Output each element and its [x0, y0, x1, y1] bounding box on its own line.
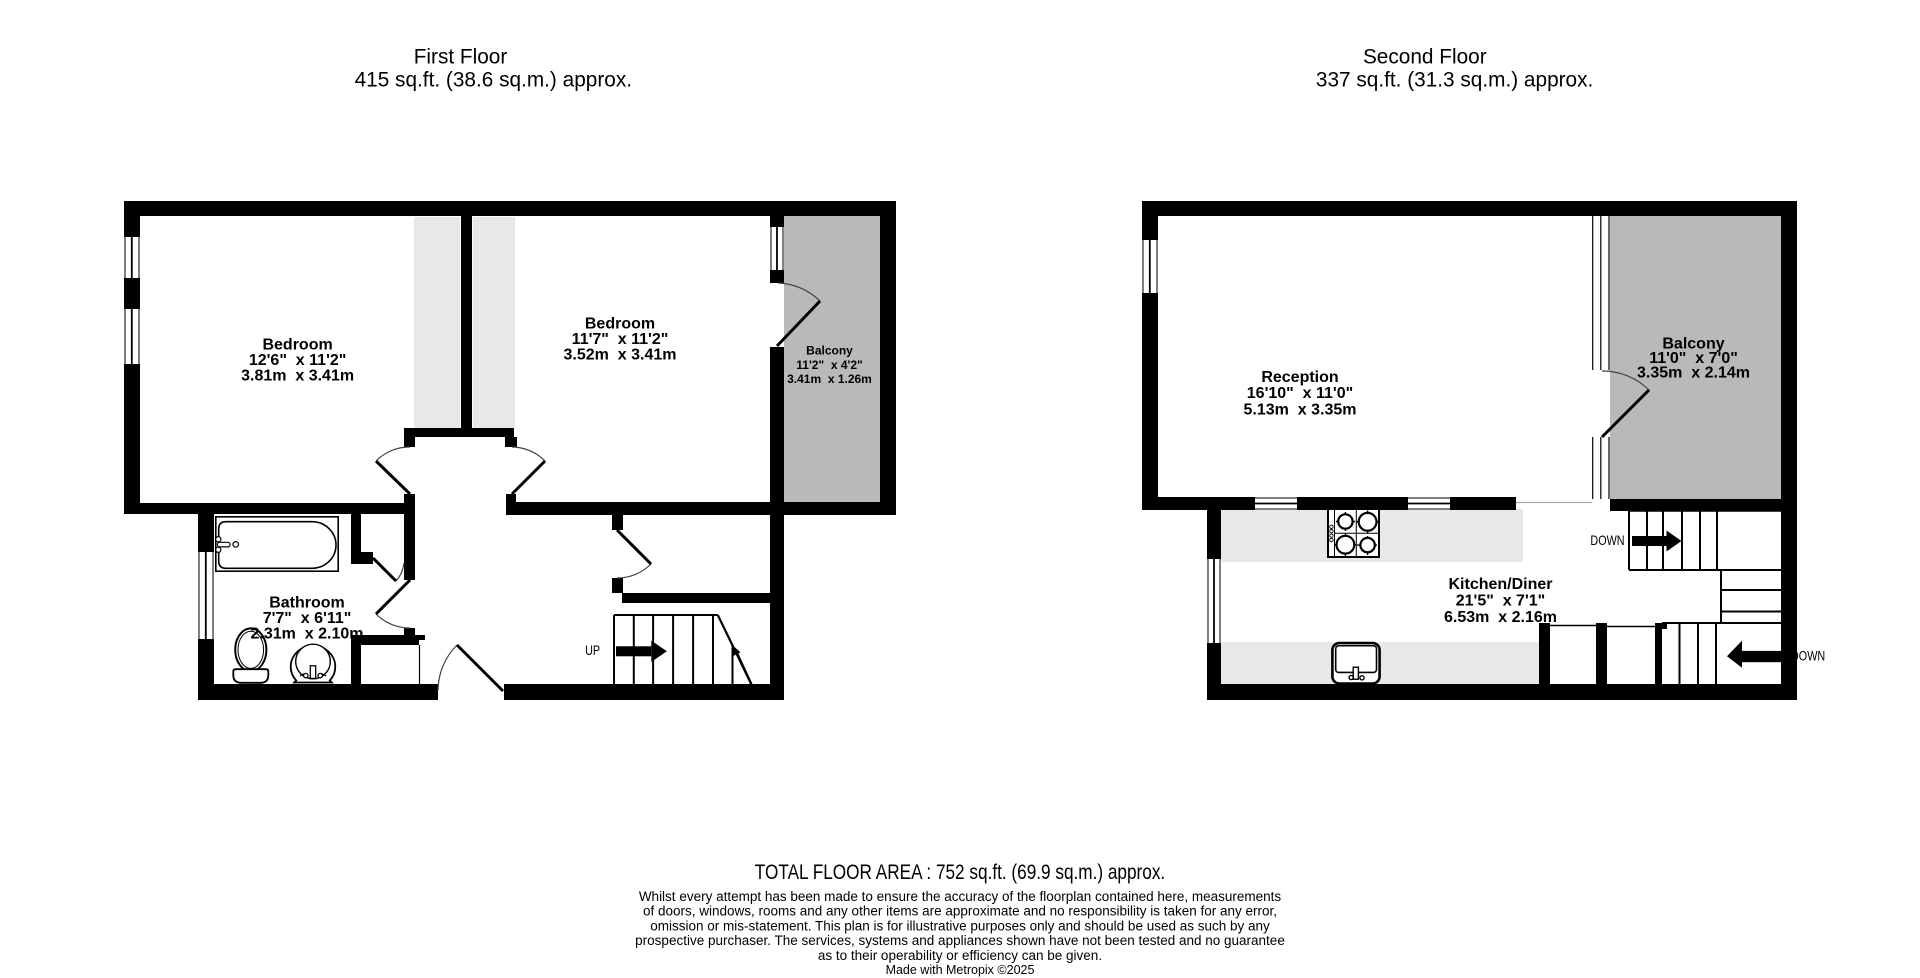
- svg-text:omission or mis-statement. Thi: omission or mis-statement. This plan is …: [650, 918, 1270, 933]
- svg-text:prospective purchaser. The ser: prospective purchaser. The services, sys…: [635, 933, 1285, 948]
- svg-text:337 sq.ft. (31.3 sq.m.) approx: 337 sq.ft. (31.3 sq.m.) approx.: [1316, 69, 1593, 92]
- svg-text:11'7" x 11'2": 11'7" x 11'2": [572, 331, 669, 348]
- svg-text:21'5" x 7'1": 21'5" x 7'1": [1456, 593, 1546, 610]
- svg-text:3.35m x 2.14m: 3.35m x 2.14m: [1637, 365, 1750, 382]
- svg-text:Whilst every attempt has been: Whilst every attempt has been made to en…: [639, 889, 1282, 904]
- svg-text:2.31m x 2.10m: 2.31m x 2.10m: [251, 626, 364, 643]
- svg-text:Balcony: Balcony: [806, 344, 853, 358]
- svg-text:UP: UP: [585, 643, 600, 658]
- svg-text:3.52m x 3.41m: 3.52m x 3.41m: [564, 347, 677, 364]
- svg-text:of doors, windows, rooms and a: of doors, windows, rooms and any other i…: [643, 904, 1277, 919]
- svg-text:16'10" x 11'0": 16'10" x 11'0": [1247, 385, 1353, 402]
- svg-text:5.13m x 3.35m: 5.13m x 3.35m: [1244, 401, 1357, 418]
- svg-text:Bathroom: Bathroom: [269, 595, 345, 612]
- svg-text:TOTAL FLOOR AREA : 752 sq.ft.: TOTAL FLOOR AREA : 752 sq.ft. (69.9 sq.m…: [755, 860, 1165, 884]
- svg-text:7'7" x 6'11": 7'7" x 6'11": [263, 610, 352, 627]
- svg-text:as to their operability or eff: as to their operability or efficiency ca…: [818, 948, 1102, 963]
- svg-text:415 sq.ft. (38.6 sq.m.) approx: 415 sq.ft. (38.6 sq.m.) approx.: [355, 69, 632, 92]
- svg-text:Bedroom: Bedroom: [262, 337, 332, 354]
- svg-text:6.53m x 2.16m: 6.53m x 2.16m: [1444, 609, 1557, 626]
- svg-text:Made with Metropix ©2025: Made with Metropix ©2025: [886, 963, 1035, 977]
- svg-text:3.81m x 3.41m: 3.81m x 3.41m: [241, 368, 354, 385]
- svg-text:DOWN: DOWN: [1791, 648, 1825, 663]
- svg-text:DOWN: DOWN: [1590, 533, 1624, 548]
- svg-text:3.41m x 1.26m: 3.41m x 1.26m: [787, 372, 872, 386]
- svg-text:First Floor: First Floor: [414, 46, 508, 69]
- svg-text:Second Floor: Second Floor: [1363, 46, 1487, 69]
- svg-text:11'2" x 4'2": 11'2" x 4'2": [796, 358, 862, 372]
- svg-text:Reception: Reception: [1261, 369, 1338, 386]
- svg-text:Bedroom: Bedroom: [585, 316, 655, 333]
- svg-text:Kitchen/Diner: Kitchen/Diner: [1448, 576, 1552, 593]
- svg-text:12'6" x 11'2": 12'6" x 11'2": [249, 352, 347, 369]
